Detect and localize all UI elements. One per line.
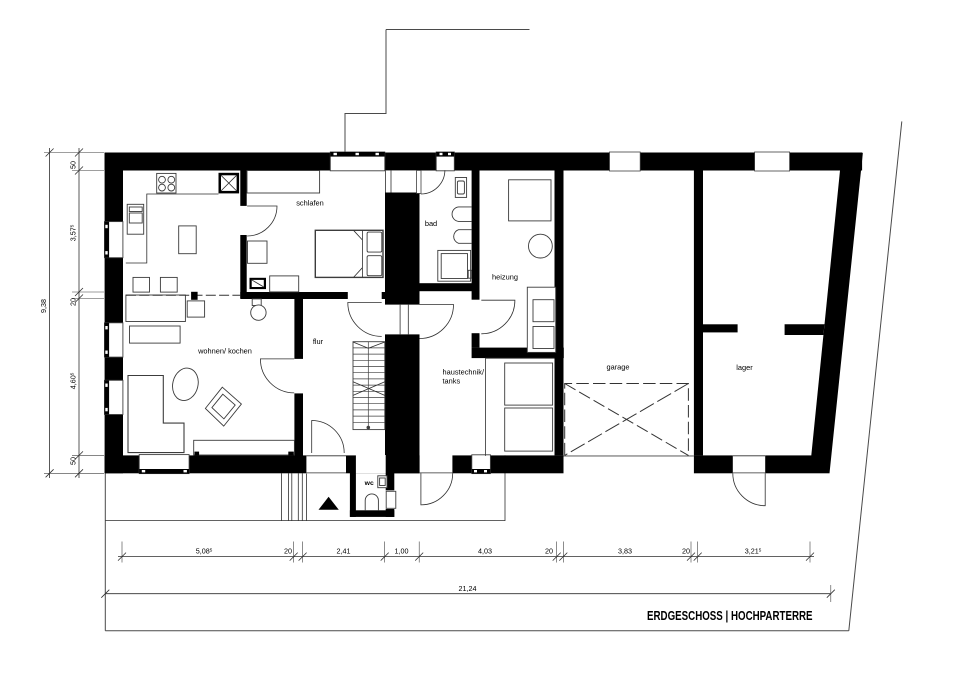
svg-text:20: 20: [69, 298, 78, 306]
svg-text:50: 50: [69, 161, 78, 169]
svg-text:haustechnik/: haustechnik/: [443, 368, 485, 377]
svg-text:2,41: 2,41: [337, 547, 351, 556]
svg-text:21,24: 21,24: [459, 584, 477, 593]
svg-text:wc: wc: [364, 480, 374, 487]
svg-text:9,38: 9,38: [39, 299, 48, 313]
svg-text:50: 50: [69, 457, 78, 465]
svg-text:20: 20: [682, 547, 690, 556]
svg-text:20: 20: [545, 547, 553, 556]
svg-text:bad: bad: [425, 219, 437, 228]
svg-text:4,03: 4,03: [478, 547, 492, 556]
svg-text:flur: flur: [313, 337, 324, 346]
svg-text:3,83: 3,83: [618, 547, 632, 556]
svg-text:heizung: heizung: [492, 273, 518, 282]
svg-text:wohnen/ kochen: wohnen/ kochen: [197, 347, 252, 356]
svg-text:lager: lager: [736, 363, 753, 372]
svg-text:20: 20: [284, 547, 292, 556]
svg-text:schlafen: schlafen: [296, 199, 324, 208]
svg-text:1,00: 1,00: [395, 547, 409, 556]
svg-text:garage: garage: [606, 363, 629, 372]
svg-text:tanks: tanks: [443, 377, 461, 386]
svg-text:ERDGESCHOSS | HOCHPARTERRE: ERDGESCHOSS | HOCHPARTERRE: [647, 610, 813, 624]
